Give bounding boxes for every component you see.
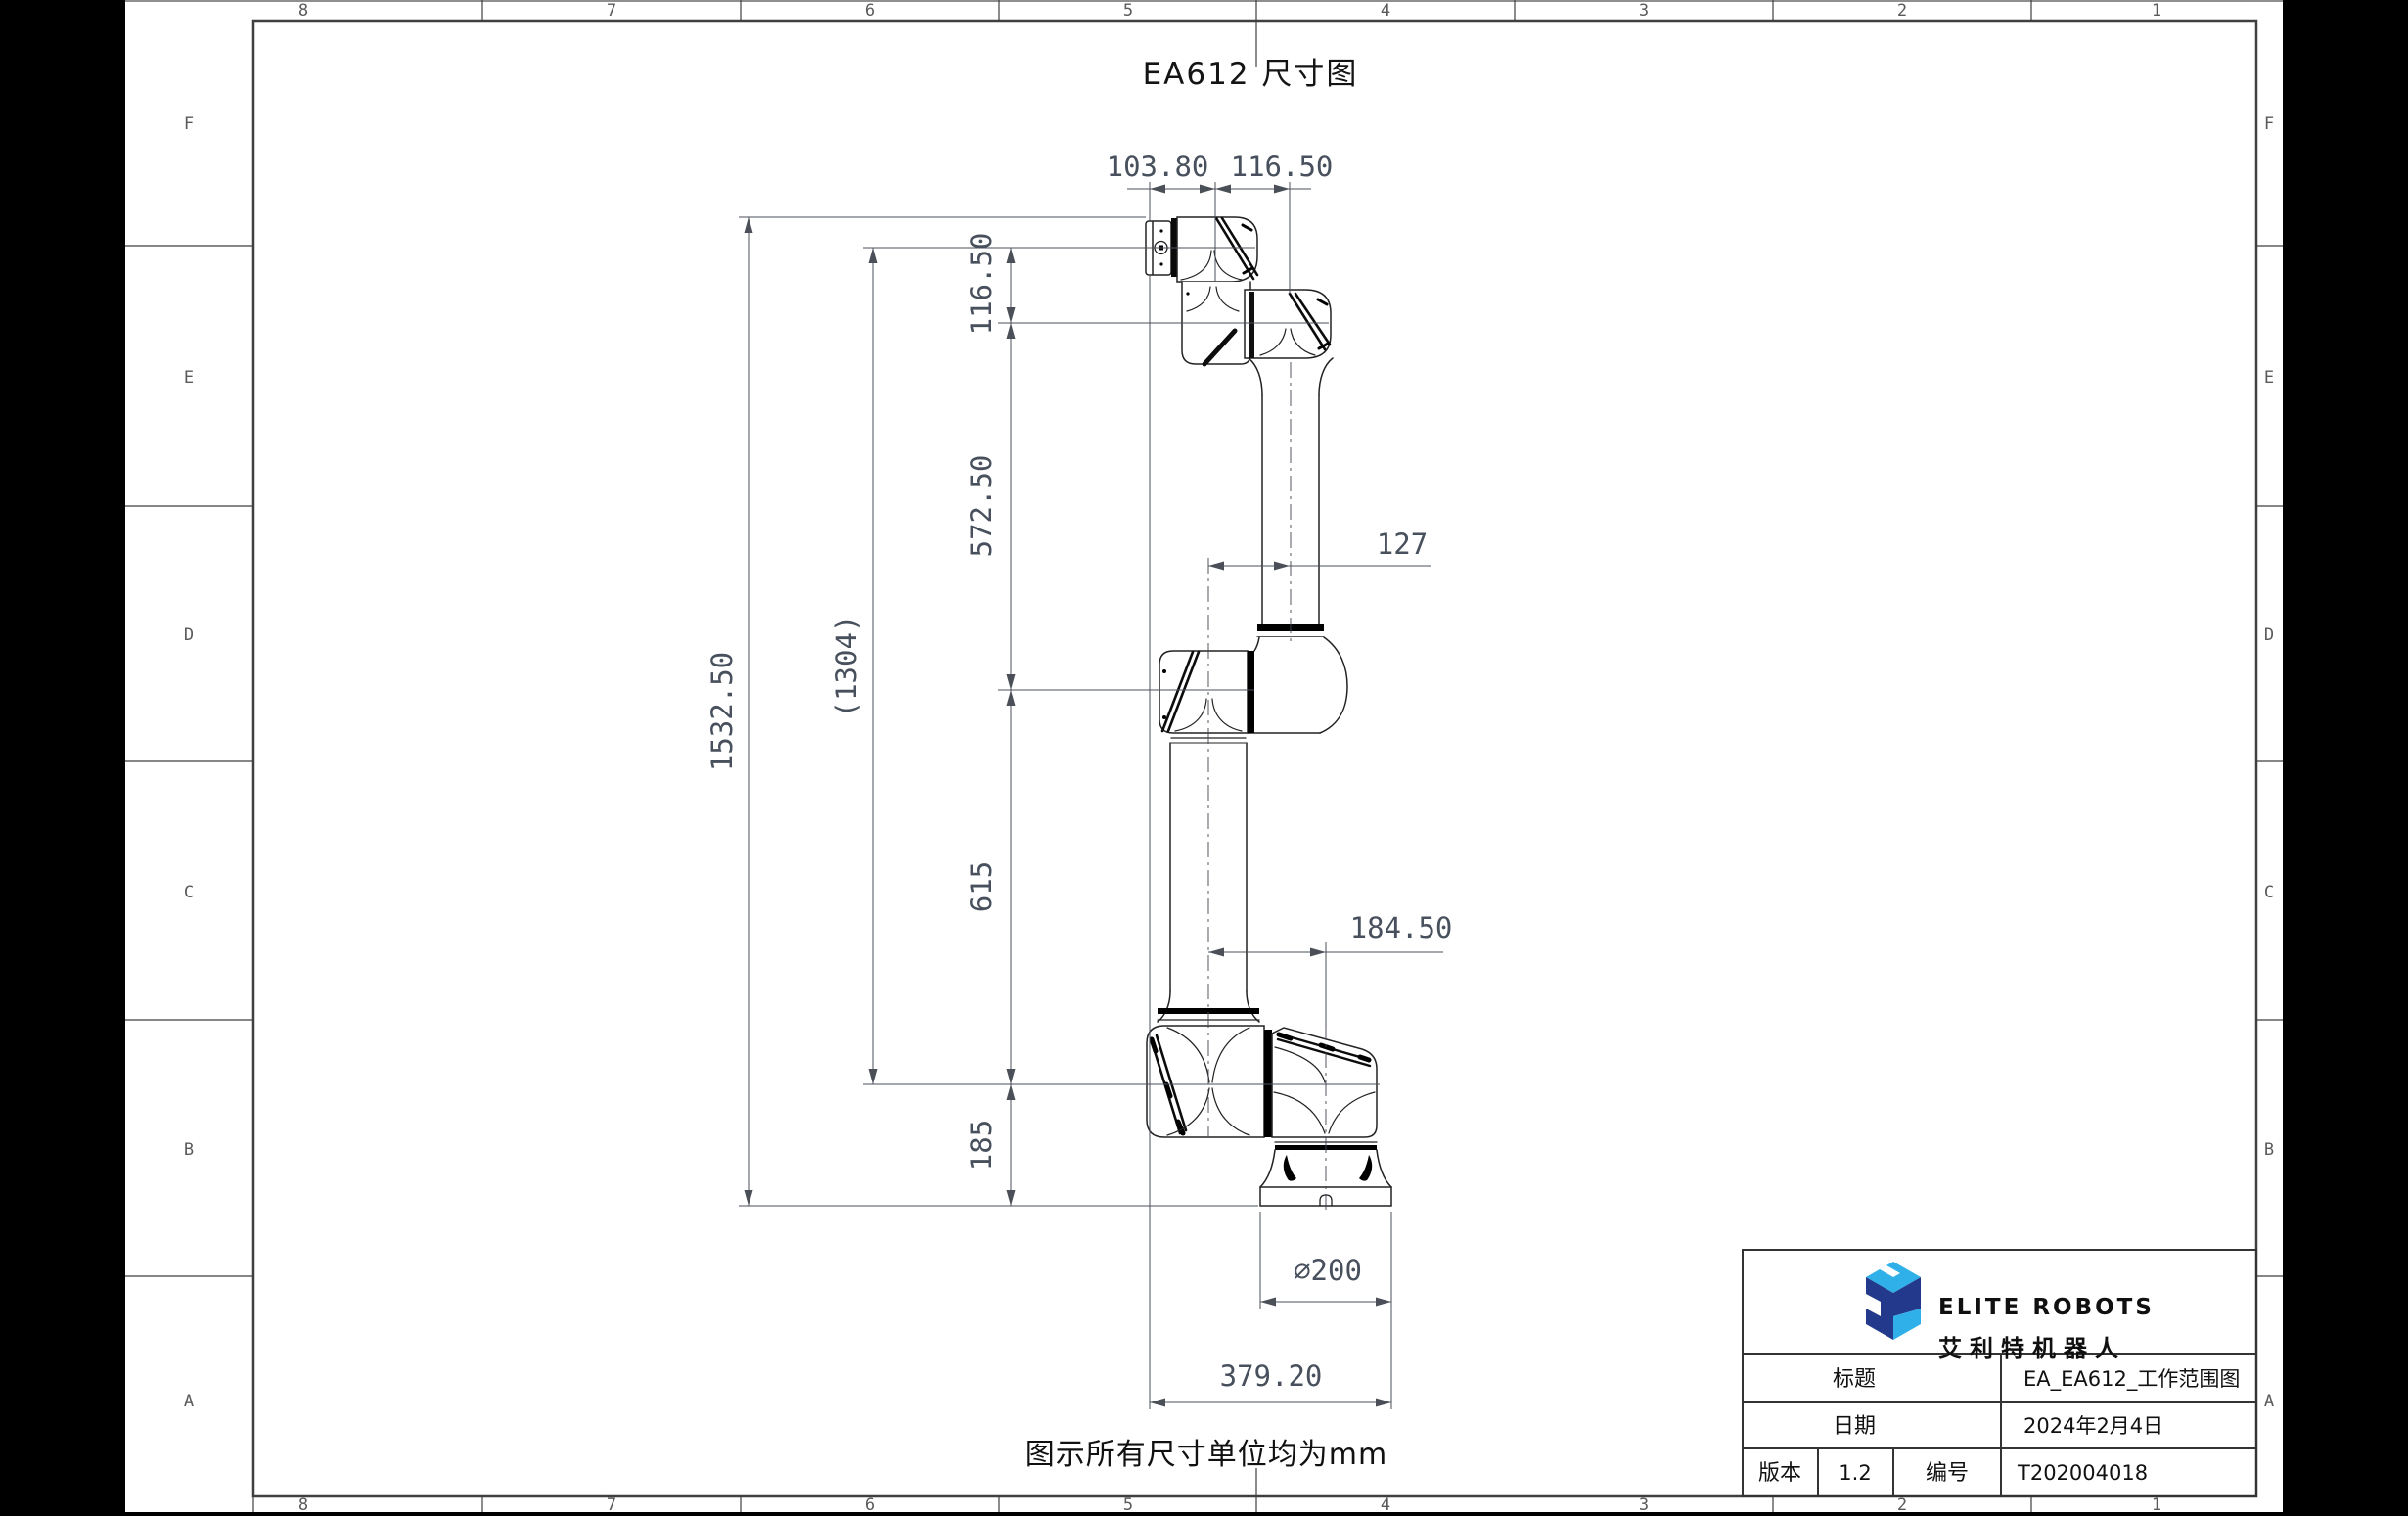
page-title: EA612 尺寸图	[1143, 57, 1359, 92]
dim-wrist-drop: 116.50	[965, 233, 998, 336]
title-value: EA_EA612_工作范围图	[2023, 1367, 2240, 1392]
zone-col-bottom: 5	[1123, 1495, 1133, 1515]
dim-lower-link: 615	[965, 861, 998, 912]
version-label: 版本	[1758, 1461, 1801, 1486]
dim-overall-width: 379.20	[1220, 1359, 1323, 1393]
dim-top-flange: 103.80	[1107, 150, 1209, 183]
zone-row-left: F	[184, 115, 194, 134]
zone-col-top: 8	[298, 1, 308, 21]
zone-row-right: F	[2264, 115, 2274, 134]
right-black-margin	[2283, 0, 2408, 1516]
brand-name-cn: 艾利特机器人	[1938, 1335, 2126, 1362]
date-label: 日期	[1833, 1414, 1876, 1439]
number-label: 编号	[1926, 1461, 1969, 1486]
brand-name-en: ELITE ROBOTS	[1938, 1295, 2155, 1320]
zone-col-top: 1	[2152, 1, 2161, 21]
zone-col-bottom: 3	[1639, 1495, 1649, 1515]
bottom-black-margin	[125, 1512, 2283, 1516]
zone-col-top: 4	[1381, 1, 1390, 21]
number-value: T202004018	[2017, 1461, 2148, 1485]
title-label: 标题	[1833, 1367, 1876, 1392]
dim-base-height: 185	[965, 1120, 998, 1171]
unit-note: 图示所有尺寸单位均为mm	[1025, 1438, 1387, 1472]
zone-row-right: B	[2264, 1140, 2274, 1160]
zone-row-left: C	[184, 883, 194, 902]
zone-col-bottom: 7	[607, 1495, 616, 1515]
dim-base-diameter: ∅200	[1294, 1254, 1362, 1287]
date-value: 2024年2月4日	[2023, 1414, 2163, 1438]
dim-upper-link: 572.50	[965, 455, 998, 558]
zone-row-left: B	[184, 1140, 194, 1160]
left-black-margin	[0, 0, 125, 1516]
zone-col-bottom: 8	[298, 1495, 308, 1515]
dim-elbow-offset: 127	[1377, 528, 1428, 561]
zone-col-top: 3	[1639, 1, 1649, 21]
zone-col-top: 6	[865, 1, 875, 21]
dim-flange-to-shoulder: (1304)	[830, 616, 863, 718]
shoulder-seam	[1264, 1030, 1272, 1137]
drawing-sheet: 8 7 6 5 4 3 2 1 8 7 6 5 4 3 2 1 F E D C …	[0, 0, 2408, 1516]
zone-row-left: A	[184, 1392, 194, 1411]
shoulder-joint-2	[1147, 1026, 1272, 1137]
zone-row-right: C	[2264, 883, 2274, 902]
zone-col-bottom: 2	[1897, 1495, 1907, 1515]
dim-top-wrist: 116.50	[1231, 150, 1334, 183]
wrist-joint-5	[1245, 290, 1331, 358]
zone-row-left: E	[184, 368, 194, 388]
dim-shoulder-offset: 184.50	[1350, 911, 1453, 944]
zone-col-top: 5	[1123, 1, 1133, 21]
zone-row-right: D	[2264, 625, 2274, 645]
version-value: 1.2	[1839, 1461, 1871, 1485]
zone-row-right: A	[2264, 1392, 2274, 1411]
zone-row-left: D	[184, 625, 194, 645]
zone-col-top: 2	[1897, 1, 1907, 21]
zone-col-bottom: 6	[865, 1495, 875, 1515]
elbow-bend	[1248, 637, 1347, 733]
zone-row-right: E	[2264, 368, 2274, 388]
zone-col-bottom: 1	[2152, 1495, 2161, 1515]
elbow-joint-3	[1159, 651, 1254, 743]
zone-col-top: 7	[607, 1, 616, 21]
zone-col-bottom: 4	[1381, 1495, 1390, 1515]
elite-robots-logo	[1866, 1262, 1921, 1340]
wrist-joint-6	[1177, 217, 1257, 282]
dim-overall-height: 1532.50	[705, 652, 739, 771]
